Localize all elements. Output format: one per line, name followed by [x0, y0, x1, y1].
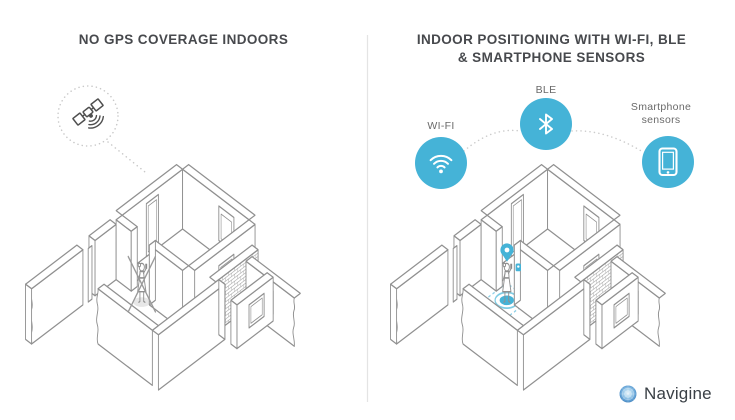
right-panel-title: INDOOR POSITIONING WITH WI-FI, BLE & SMA…	[368, 31, 735, 66]
satellite-icon	[73, 99, 111, 135]
person-shadow	[133, 297, 150, 307]
dotted-connector-line	[108, 142, 145, 172]
building-right-illustration	[391, 165, 666, 390]
smartphone-sensors-label: Smartphone sensors	[616, 101, 706, 126]
illustration-canvas: NO GPS COVERAGE INDOORS INDOOR POSITIONI…	[0, 0, 735, 420]
navigine-logo-icon	[620, 386, 637, 403]
gps-dotted-circle	[58, 86, 145, 172]
right-panel-title-line2: & SMARTPHONE SENSORS	[368, 49, 735, 67]
building-left-illustration	[26, 165, 301, 390]
smartphone-label-line1: Smartphone	[616, 101, 706, 114]
wifi-icon	[415, 137, 467, 189]
position-highlight-ellipse	[500, 295, 514, 305]
ble-label: BLE	[516, 84, 576, 97]
smartphone-icon	[642, 136, 694, 188]
bluetooth-icon	[520, 98, 572, 150]
right-panel-title-line1: INDOOR POSITIONING WITH WI-FI, BLE	[368, 31, 735, 49]
ble-beacon-on-wall-icon	[516, 264, 521, 272]
smartphone-label-line2: sensors	[616, 114, 706, 127]
left-panel-title: NO GPS COVERAGE INDOORS	[0, 31, 367, 49]
wifi-label: WI-FI	[401, 120, 481, 133]
navigine-logo-text: Navigine	[644, 384, 712, 404]
